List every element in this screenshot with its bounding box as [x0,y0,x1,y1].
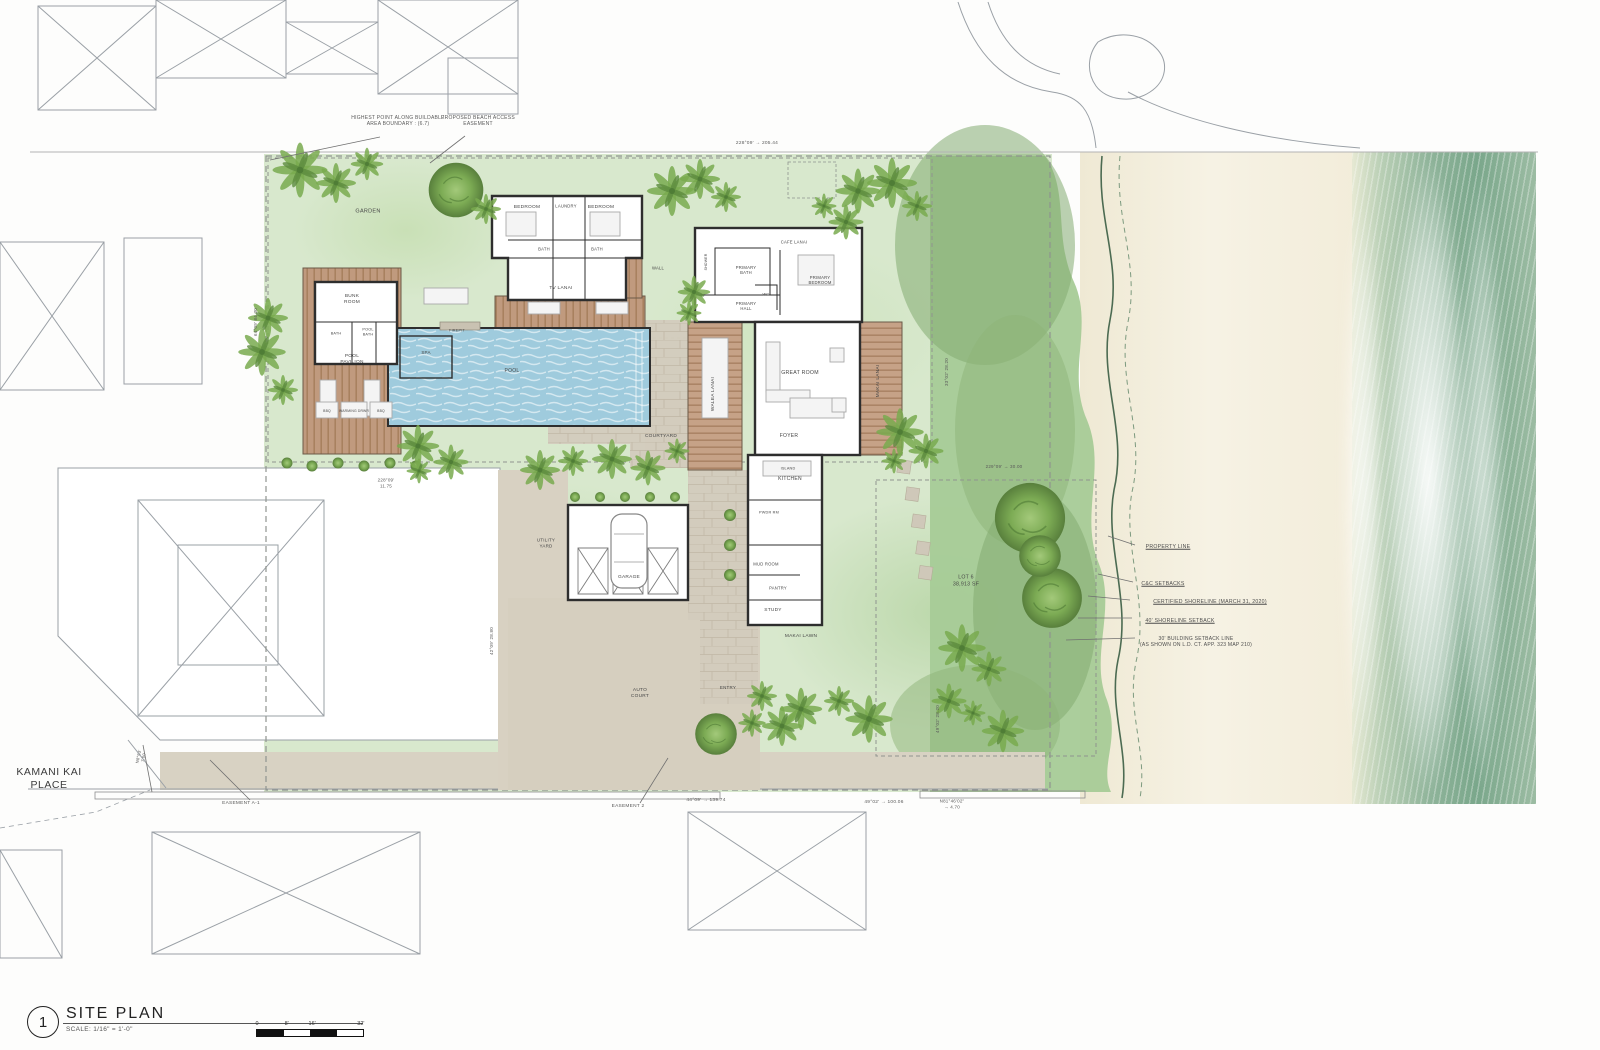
dim-top: 228°09' → 205.44 [736,141,778,147]
label-makai-lawn: MAKAI LAWN [785,634,817,640]
dim-right-1: 33°02' 28.20 [944,358,950,386]
dim-left-1: 64°09' 84.30 [253,308,259,336]
site-plan-sheet: KAMANI KAI PLACEGARDENBEDROOMLAUNDRYBEDR… [0,0,1600,1050]
label-utility-yard: UTILITY YARD [537,537,555,548]
scale-note: SCALE: 1/16" = 1'-0" [66,1026,133,1033]
label-makai-lanai: MAKAI LANAI [876,365,882,398]
label-auto-court: AUTO COURT [631,688,649,700]
label-primary-hall: PRIMARY HALL [736,301,756,312]
label-pantry: PANTRY [769,585,787,590]
scale-tick: 32' [357,1021,364,1027]
dim-right-3: 49°02' 28.20 [935,705,941,733]
dim-mid-1: 228°09' 11.75 [378,477,395,488]
plan-labels: KAMANI KAI PLACEGARDENBEDROOMLAUNDRYBEDR… [0,0,1600,1050]
label-bath-2: BATH [591,246,603,251]
label-bedroom-1: BEDROOM [514,205,540,211]
drawing-number-bubble: 1 [27,1006,59,1038]
label-primary-bath: PRIMARY BATH [736,265,756,276]
label-foyer: FOYER [780,433,798,439]
note-highest-point: HIGHEST POINT ALONG BUILDABLE AREA BOUND… [351,115,444,128]
label-spa: SPA [421,350,430,356]
dim-right-2: 229°09' → 30.00 [986,464,1023,470]
dim-bottom-3: 49°02' → 100.06 [864,800,903,806]
label-garden: GARDEN [355,209,380,216]
dim-street: N8°53' 7.00 [134,749,147,765]
street-label: KAMANI KAI PLACE [16,766,81,792]
scale-segment [257,1030,284,1036]
label-lot: LOT 6 38,913 SF [953,575,979,588]
note-shoreline-setback: 40' SHORELINE SETBACK [1145,618,1214,625]
scale-segment [337,1030,364,1036]
note-building-setback: 30' BUILDING SETBACK LINE (AS SHOWN ON L… [1140,636,1252,649]
label-bath-1: BATH [538,246,550,251]
label-tv-lanai: TV LANAI [549,286,572,292]
note-cc-setbacks: C&C SETBACKS [1141,581,1184,588]
sheet-title: SITE PLAN [66,1005,165,1023]
label-firepit: FIREPIT [449,329,465,334]
note-property-line: PROPERTY LINE [1146,544,1191,551]
dim-left-2: 42°09' 28.80 [489,627,495,655]
label-cafe-lanai: CAFE LANAI [781,239,808,244]
label-study: STUDY [764,608,781,614]
label-wall: WALL [652,265,664,270]
label-wc: WC [762,292,769,297]
note-beach-access: PROPOSED BEACH ACCESS EASEMENT [441,115,515,128]
label-great-room: GREAT ROOM [781,370,819,377]
label-warming: WARMING DRWR [339,409,369,413]
graphic-scale-bar: 0 8' 16' 32' [256,1029,364,1037]
scale-tick: 16' [309,1021,316,1027]
label-bbq-1: BBQ [323,409,331,413]
label-pool-bath: POOL BATH [362,327,373,336]
label-entry: ENTRY [720,685,736,691]
label-pool-pavilion: POOL PAVILION [340,354,363,366]
label-mud-room: MUD ROOM [753,561,778,566]
label-walea-lanai: WALEA LANAI [711,377,717,411]
label-kitchen: KITCHEN [778,476,802,482]
label-bunk-room: BUNK ROOM [344,294,360,306]
label-primary-bedroom: PRIMARY BEDROOM [808,275,831,286]
label-garage: GARAGE [618,575,640,581]
dim-bottom-1: 44°09' → 139.74 [686,798,725,804]
label-laundry: LAUNDRY [555,203,576,208]
label-island: ISLAND [781,467,796,472]
note-easement-2: EASEMENT 2 [612,804,645,810]
note-easement-a1: EASEMENT A-1 [222,801,260,807]
label-bbq-2: BBQ [377,409,385,413]
label-bath-3: BATH [331,332,342,337]
dim-bottom-2: N81°46'02" → 4.70 [940,798,965,809]
label-pwdr-rm: PWDR RM [759,511,779,516]
label-shower: SHOWER [704,254,708,271]
note-certified-shoreline: CERTIFIED SHORELINE (MARCH 31, 2020) [1153,599,1267,606]
scale-segment [284,1030,311,1036]
scale-tick: 8' [285,1021,289,1027]
title-divider [63,1023,363,1024]
label-pool: POOL [505,368,520,374]
scale-segment [310,1030,337,1036]
label-courtyard: COURTYARD [645,434,677,440]
label-bedroom-2: BEDROOM [588,205,614,211]
scale-tick: 0 [255,1021,258,1027]
drawing-number: 1 [39,1014,47,1031]
